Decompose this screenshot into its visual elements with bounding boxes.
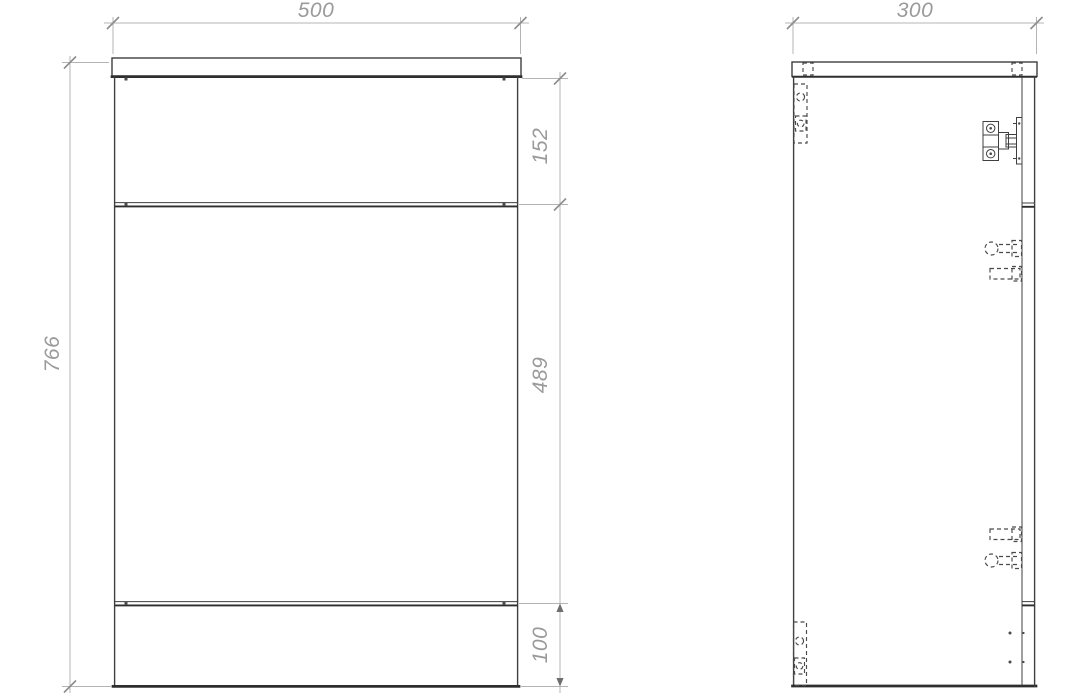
dim-label-width: 500 (298, 0, 335, 22)
front-countertop (112, 58, 521, 76)
dim-label-bottom-section: 100 (529, 627, 552, 664)
drawing-svg: 500 766 152 489 100 (0, 0, 1091, 700)
dim-label-height: 766 (41, 336, 64, 373)
front-view: 500 766 152 489 100 (41, 0, 568, 693)
back-lower-bracket (794, 622, 807, 686)
front-fixing-marks (125, 78, 506, 606)
dim-label-depth: 300 (897, 0, 934, 22)
hinge-icon (983, 118, 1022, 165)
hidden-fittings (794, 63, 1025, 686)
front-height-dimension: 766 (41, 56, 111, 693)
lower-cam-fitting (985, 527, 1022, 569)
dim-label-middle-section: 489 (529, 357, 552, 394)
side-countertop (792, 62, 1037, 77)
dim-label-top-section: 152 (529, 128, 552, 165)
side-depth-dimension: 300 (785, 0, 1044, 54)
front-width-dimension: 500 (104, 0, 529, 54)
upper-cam-fitting (985, 241, 1022, 282)
back-upper-bracket (794, 84, 807, 143)
side-view: 300 (785, 0, 1044, 686)
technical-drawing: 500 766 152 489 100 (0, 0, 1091, 700)
front-segment-dimensions: 152 489 100 (519, 72, 568, 693)
